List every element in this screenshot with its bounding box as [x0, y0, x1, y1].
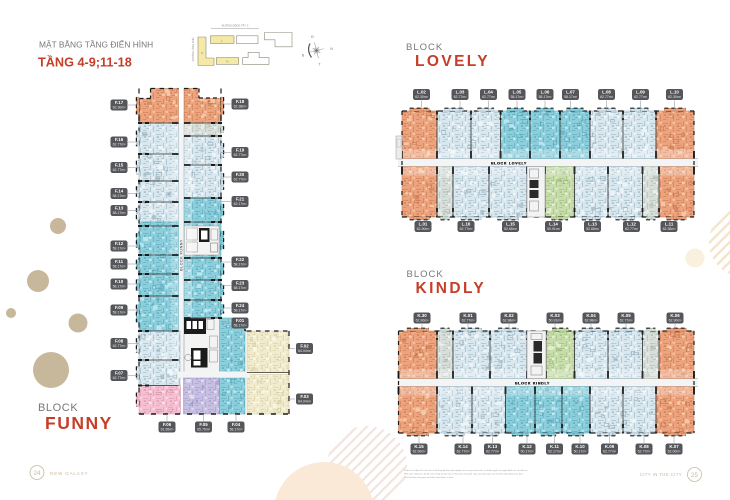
- svg-text:L.16: L.16: [462, 222, 471, 227]
- svg-text:65.75m²: 65.75m²: [197, 428, 211, 432]
- svg-text:F.22: F.22: [236, 257, 245, 262]
- svg-text:F.01: F.01: [236, 318, 245, 323]
- svg-text:50.91m²: 50.91m²: [549, 319, 563, 323]
- svg-text:F.02: F.02: [300, 344, 309, 349]
- svg-text:K.05: K.05: [621, 313, 631, 318]
- svg-text:K.10: K.10: [575, 444, 585, 449]
- svg-text:52.68m²: 52.68m²: [504, 227, 518, 231]
- svg-text:F.05: F.05: [199, 422, 208, 427]
- svg-text:58.17m²: 58.17m²: [113, 247, 127, 251]
- svg-text:L.01: L.01: [419, 222, 428, 227]
- svg-text:62.77m²: 62.77m²: [620, 319, 634, 323]
- svg-text:K.03: K.03: [550, 313, 560, 318]
- svg-text:58.17m²: 58.17m²: [234, 324, 248, 328]
- svg-text:62.38m²: 62.38m²: [663, 227, 677, 231]
- svg-text:58.17m²: 58.17m²: [113, 194, 127, 198]
- svg-text:K.30: K.30: [417, 313, 427, 318]
- svg-text:25: 25: [691, 472, 698, 479]
- svg-text:52.17m²: 52.17m²: [548, 450, 562, 454]
- svg-text:58.17m²: 58.17m²: [539, 95, 553, 99]
- svg-text:64.04m²: 64.04m²: [298, 349, 312, 353]
- svg-text:24: 24: [34, 470, 41, 477]
- svg-text:BLOCK: BLOCK: [406, 42, 443, 53]
- svg-text:F.18: F.18: [236, 99, 245, 104]
- svg-text:62.30m²: 62.30m²: [668, 95, 682, 99]
- svg-text:62.77m²: 62.77m²: [634, 95, 648, 99]
- svg-text:K.06: K.06: [670, 313, 680, 318]
- svg-text:F.19: F.19: [236, 148, 245, 153]
- svg-text:F.03: F.03: [300, 394, 309, 399]
- svg-text:K.14: K.14: [458, 444, 468, 449]
- svg-text:Căn hộ được bàn giao thô hoặc: Căn hộ được bàn giao thô hoặc hoàn thiện…: [404, 476, 454, 479]
- svg-text:62.90m²: 62.90m²: [413, 450, 427, 454]
- svg-text:62.77m²: 62.77m²: [638, 450, 652, 454]
- svg-text:F.12: F.12: [115, 241, 124, 246]
- svg-text:F.21: F.21: [236, 197, 245, 202]
- svg-text:58.17m²: 58.17m²: [511, 95, 525, 99]
- svg-text:BLOCK KINDLY: BLOCK KINDLY: [515, 381, 550, 385]
- svg-text:K.02: K.02: [504, 313, 514, 318]
- svg-text:58.17m²: 58.17m²: [234, 309, 248, 313]
- svg-text:58.17m²: 58.17m²: [234, 286, 248, 290]
- svg-text:K.11: K.11: [550, 444, 560, 449]
- svg-text:62.77m²: 62.77m²: [460, 227, 474, 231]
- svg-text:62.77m²: 62.77m²: [462, 319, 476, 323]
- svg-text:62.98m²: 62.98m²: [585, 319, 599, 323]
- svg-text:62.90m²: 62.90m²: [669, 319, 683, 323]
- svg-text:F.15: F.15: [115, 163, 124, 168]
- svg-text:K.09: K.09: [605, 444, 615, 449]
- svg-text:K.12: K.12: [522, 444, 532, 449]
- svg-text:L.14: L.14: [549, 222, 558, 227]
- svg-text:K.01: K.01: [463, 313, 473, 318]
- svg-text:F.24: F.24: [236, 303, 245, 308]
- svg-text:F.08: F.08: [115, 339, 124, 344]
- svg-text:K.15: K.15: [414, 444, 424, 449]
- svg-text:62.77m²: 62.77m²: [454, 95, 468, 99]
- svg-text:61.65m²: 61.65m²: [161, 428, 175, 432]
- svg-text:F.17: F.17: [115, 100, 124, 105]
- svg-text:58.17m²: 58.17m²: [564, 95, 578, 99]
- svg-text:L.07: L.07: [566, 90, 575, 95]
- svg-text:58.17m²: 58.17m²: [113, 265, 127, 269]
- svg-text:62.90m²: 62.90m²: [416, 319, 430, 323]
- svg-text:62.77m²: 62.77m²: [486, 450, 500, 454]
- svg-text:62.77m²: 62.77m²: [113, 376, 127, 380]
- svg-text:52.68m²: 52.68m²: [586, 227, 600, 231]
- svg-text:L.04: L.04: [484, 90, 493, 95]
- svg-text:58.17m²: 58.17m²: [113, 285, 127, 289]
- svg-text:58.17m²: 58.17m²: [113, 211, 127, 215]
- svg-text:K.04: K.04: [586, 313, 596, 318]
- svg-text:58.17m²: 58.17m²: [234, 263, 248, 267]
- svg-text:N: N: [330, 47, 333, 51]
- svg-text:F.23: F.23: [236, 281, 245, 286]
- svg-text:62.77m²: 62.77m²: [603, 450, 617, 454]
- svg-text:F.16: F.16: [115, 137, 124, 142]
- svg-text:L.12: L.12: [627, 222, 636, 227]
- svg-text:L.10: L.10: [670, 90, 679, 95]
- svg-text:F.04: F.04: [232, 422, 241, 427]
- svg-text:L.02: L.02: [417, 90, 426, 95]
- svg-text:F.13: F.13: [115, 206, 124, 211]
- svg-text:50.17m²: 50.17m²: [574, 450, 588, 454]
- svg-text:F.14: F.14: [115, 189, 124, 194]
- svg-text:50.17m²: 50.17m²: [521, 450, 535, 454]
- svg-text:L.03: L.03: [456, 90, 465, 95]
- svg-text:58.17m²: 58.17m²: [230, 428, 244, 432]
- svg-text:50.91m²: 50.91m²: [547, 227, 561, 231]
- svg-text:62.17m²: 62.17m²: [234, 202, 248, 206]
- svg-text:BLOCK LOVELY: BLOCK LOVELY: [491, 161, 527, 165]
- svg-text:62.77m²: 62.77m²: [234, 178, 248, 182]
- svg-text:58.17m²: 58.17m²: [113, 311, 127, 315]
- svg-text:K.08: K.08: [639, 444, 649, 449]
- svg-text:L.09: L.09: [636, 90, 645, 95]
- svg-text:F.10: F.10: [115, 279, 124, 284]
- svg-text:Đ: Đ: [311, 35, 314, 39]
- svg-text:L.15: L.15: [506, 222, 515, 227]
- svg-text:Thiết kế và diện tích căn hộ c: Thiết kế và diện tích căn hộ có thể thay…: [404, 469, 528, 472]
- svg-text:TẦNG 4-9;11-18: TẦNG 4-9;11-18: [38, 55, 132, 70]
- svg-text:MẶT BẰNG TẦNG ĐIỂN HÌNH: MẶT BẰNG TẦNG ĐIỂN HÌNH: [39, 39, 153, 50]
- svg-text:62.77m²: 62.77m²: [113, 344, 127, 348]
- svg-text:L.06: L.06: [541, 90, 550, 95]
- svg-text:F: F: [202, 51, 204, 55]
- svg-text:Hình ảnh, thông tin, dữ liệu n: Hình ảnh, thông tin, dữ liệu nêu trong t…: [404, 473, 524, 476]
- svg-text:LOVELY: LOVELY: [415, 53, 490, 70]
- svg-text:KINDLY: KINDLY: [416, 280, 487, 297]
- svg-text:NEW GALAXY: NEW GALAXY: [50, 471, 88, 476]
- svg-text:CITY IN THE CITY: CITY IN THE CITY: [640, 472, 682, 477]
- svg-text:L: L: [221, 38, 223, 42]
- svg-text:62.00m²: 62.00m²: [668, 450, 682, 454]
- svg-text:K.13: K.13: [488, 444, 498, 449]
- svg-text:62.77m²: 62.77m²: [482, 95, 496, 99]
- svg-text:F.20: F.20: [236, 172, 245, 177]
- svg-text:L.11: L.11: [665, 222, 674, 227]
- svg-text:F.09: F.09: [115, 305, 124, 310]
- svg-text:62.30m²: 62.30m²: [415, 95, 429, 99]
- svg-text:L.05: L.05: [513, 90, 522, 95]
- svg-text:F.06: F.06: [163, 422, 172, 427]
- svg-text:62.98m²: 62.98m²: [503, 319, 517, 323]
- svg-text:L.13: L.13: [588, 222, 597, 227]
- svg-text:62.30m²: 62.30m²: [113, 106, 127, 110]
- svg-text:62.77m²: 62.77m²: [457, 450, 471, 454]
- svg-text:F.07: F.07: [115, 371, 124, 376]
- svg-text:62.77m²: 62.77m²: [600, 95, 614, 99]
- svg-text:62.90m²: 62.90m²: [417, 227, 431, 231]
- svg-text:62.38m²: 62.38m²: [234, 105, 248, 109]
- svg-text:62.77m²: 62.77m²: [625, 227, 639, 231]
- svg-text:62.77m²: 62.77m²: [234, 153, 248, 157]
- svg-text:FUNNY: FUNNY: [45, 413, 113, 433]
- svg-text:K.07: K.07: [669, 444, 679, 449]
- svg-text:F.11: F.11: [115, 259, 124, 264]
- svg-text:L.08: L.08: [602, 90, 611, 95]
- svg-text:BLOCK FUNNY: BLOCK FUNNY: [180, 239, 184, 271]
- svg-text:64.04m²: 64.04m²: [298, 400, 312, 404]
- svg-text:62.77m²: 62.77m²: [113, 143, 127, 147]
- svg-text:62.77m²: 62.77m²: [113, 168, 127, 172]
- svg-text:BLOCK: BLOCK: [407, 269, 444, 280]
